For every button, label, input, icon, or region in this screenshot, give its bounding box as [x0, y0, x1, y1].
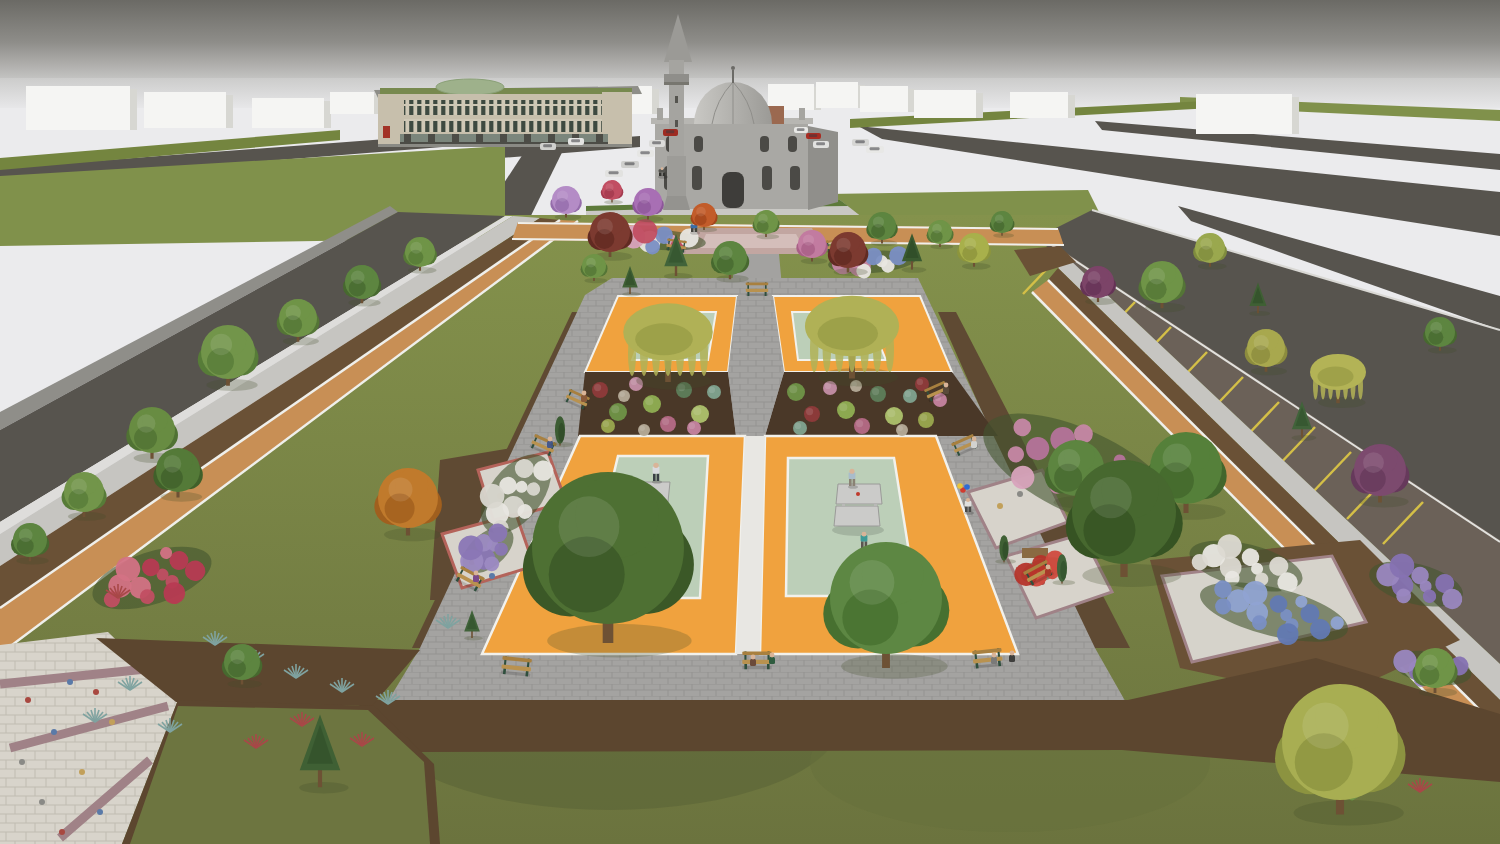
accent-tile [997, 503, 1003, 509]
tree-shadow [384, 528, 441, 541]
person [943, 383, 949, 394]
minaret-base [667, 156, 686, 196]
bench [972, 648, 1003, 669]
column-shade [558, 423, 564, 442]
accent-tile [67, 679, 73, 685]
tree-shadow [834, 268, 868, 276]
canopy-highlight [1422, 654, 1438, 670]
plant-highlight [631, 379, 637, 385]
plant-highlight [905, 391, 911, 397]
tree-shadow [636, 372, 712, 390]
massing-box-side [908, 89, 915, 112]
canopy-highlight [557, 190, 568, 201]
canopy-highlight [1088, 271, 1101, 284]
balloon-blue [964, 484, 970, 490]
car-windows [571, 139, 580, 142]
mosque-window-upper [760, 136, 769, 152]
tree-shadow [555, 214, 582, 220]
tree-shadow [1249, 311, 1270, 316]
canopy-highlight [1430, 322, 1442, 334]
tree-shadow [1085, 298, 1115, 305]
person-head [751, 655, 756, 660]
tree-shadow [871, 240, 898, 246]
canopy-highlight [696, 207, 706, 217]
massing-box [816, 82, 858, 108]
person-legs [657, 473, 660, 481]
tree-shadow [547, 624, 691, 657]
massing-box [26, 86, 130, 130]
tree-shadow [1294, 800, 1404, 826]
tree-shadow [756, 234, 779, 239]
person [547, 437, 553, 448]
mosque-corner-pinnacle-left [657, 108, 663, 120]
massing-box [330, 92, 374, 114]
tree-shadow [408, 267, 437, 274]
plant-highlight [611, 405, 619, 413]
accent-tile [25, 697, 31, 703]
accent-tile [39, 799, 45, 805]
person [1045, 565, 1051, 576]
massing-box [144, 92, 226, 128]
tree-shadow [1428, 347, 1457, 354]
tree-shadow [1318, 397, 1366, 408]
tree-shadow [930, 244, 953, 249]
plant-highlight [872, 388, 879, 395]
canopy-highlight [1090, 477, 1132, 519]
canopy-highlight [389, 478, 413, 502]
canopy-highlight [164, 455, 182, 473]
plant-highlight [640, 426, 645, 431]
table-logo [856, 492, 860, 496]
mosque-window-upper [788, 136, 797, 152]
canopy-highlight [351, 270, 365, 284]
massing-box-side [226, 95, 233, 128]
person-legs [969, 506, 972, 512]
massing-box [252, 98, 324, 128]
mosque-window-lower [692, 166, 702, 190]
person [750, 655, 756, 666]
person-head [944, 383, 949, 388]
tree-shadow [584, 278, 607, 283]
plant-highlight [693, 407, 701, 415]
person [991, 653, 997, 664]
tree-shadow [1359, 496, 1408, 507]
tree-shadow [637, 216, 664, 222]
willow-shade [818, 317, 878, 351]
plant-highlight [920, 414, 927, 421]
car-windows [640, 151, 649, 154]
tree-shadow [16, 557, 48, 564]
building-window-strip-lower [404, 119, 606, 132]
minaret-base-skirt [663, 196, 690, 210]
park-render-canvas [0, 0, 1500, 844]
canopy-highlight [606, 183, 614, 191]
canopy-highlight [836, 238, 850, 252]
building-base-shadow [378, 144, 632, 147]
mosque-window-upper [694, 136, 703, 152]
person-torso [971, 441, 977, 448]
person-torso [991, 657, 997, 664]
tree-shadow [1251, 367, 1287, 375]
massing-box [1196, 94, 1292, 134]
person-torso [581, 395, 587, 402]
canopy-highlight [1058, 449, 1080, 471]
canopy-highlight [586, 258, 596, 268]
accent-tile [489, 573, 495, 579]
tree-shadow [818, 368, 898, 386]
bench-seat [742, 660, 771, 664]
tree-shadow [801, 258, 828, 264]
bench [742, 651, 771, 669]
canopy-highlight [995, 215, 1004, 224]
canopy-highlight [19, 528, 33, 542]
tree-shadow [464, 636, 483, 640]
person-legs [659, 172, 662, 176]
canopy-highlight [964, 238, 976, 250]
canopy-highlight [850, 560, 895, 605]
plant-highlight [789, 385, 797, 393]
car-windows [809, 134, 817, 137]
person-legs [965, 506, 968, 512]
bench-seat [746, 289, 768, 292]
mosque-window-lower [762, 166, 772, 190]
plant-highlight [839, 403, 847, 411]
canopy-highlight [1148, 268, 1165, 285]
accent-tile [19, 759, 25, 765]
tree-shadow [841, 654, 947, 679]
tree-shadow [1292, 435, 1317, 441]
accent-tile [93, 689, 99, 695]
minaret-slit2 [675, 120, 678, 127]
mosque-finial-knob [731, 66, 735, 70]
canopy-highlight [1163, 444, 1192, 473]
tree-shadow [68, 512, 106, 521]
table-half [834, 506, 880, 526]
canopy-highlight [71, 478, 87, 494]
canopy-highlight [758, 214, 768, 224]
person-head [582, 391, 587, 396]
plant-highlight [887, 409, 895, 417]
person-head [474, 571, 479, 576]
tree-shadow [1082, 564, 1181, 587]
car-windows [652, 141, 661, 144]
park-render-stage [0, 0, 1500, 844]
plant-highlight [856, 420, 863, 427]
car-windows [543, 144, 552, 147]
bench [501, 656, 532, 677]
building-entrance-red [383, 126, 390, 138]
car-windows [816, 142, 825, 145]
person-legs [653, 473, 656, 481]
canopy-highlight [873, 216, 884, 227]
person-torso [769, 657, 775, 664]
car-windows [855, 140, 864, 143]
tree-shadow [1419, 688, 1457, 697]
plant-highlight [645, 397, 653, 405]
massing-box [914, 90, 976, 118]
person-head [992, 653, 997, 658]
person-head [1010, 651, 1015, 656]
canopy-highlight [639, 192, 650, 203]
person-head [849, 469, 854, 474]
canopy-highlight [137, 414, 155, 432]
accent-tile [51, 729, 57, 735]
minaret-balcony-shadow [664, 82, 689, 85]
canopy-highlight [559, 496, 620, 557]
plant-highlight [603, 421, 609, 427]
person-head [862, 532, 867, 537]
person-head [661, 167, 664, 170]
tree-shadow [694, 227, 717, 232]
canopy-highlight [803, 234, 814, 245]
bench-back [742, 651, 771, 655]
tree-shadow [716, 275, 748, 282]
canopy-highlight [1363, 452, 1384, 473]
balloon-yellow [957, 483, 963, 489]
canopy-highlight [210, 334, 232, 356]
car-windows [870, 147, 880, 150]
person-head [653, 463, 658, 468]
mosque-door [722, 172, 744, 208]
bench [746, 282, 768, 296]
person [581, 391, 587, 402]
willow-shade [1318, 367, 1354, 387]
person-torso [1009, 655, 1015, 662]
massing-box-side [324, 101, 331, 128]
civic-building [374, 79, 642, 147]
person-legs [663, 172, 666, 176]
plant-highlight [689, 423, 695, 429]
massing-box-side [976, 93, 983, 118]
canopy-highlight [1254, 335, 1269, 350]
column-shade [1002, 541, 1008, 559]
person-head [966, 498, 970, 502]
plant-highlight [662, 418, 669, 425]
person [1009, 651, 1015, 662]
car-windows [666, 130, 674, 133]
tree-shadow [1145, 303, 1185, 312]
minaret-balcony [664, 74, 689, 83]
person-head [548, 437, 553, 442]
tree-shadow [228, 680, 262, 688]
willow-shade [635, 323, 693, 355]
canopy-highlight [932, 224, 942, 234]
person-torso [1045, 569, 1051, 576]
car-windows [609, 171, 619, 174]
tree-shadow [348, 299, 380, 306]
sky [0, 0, 1500, 84]
minaret-slit1 [675, 96, 678, 103]
plant-highlight [806, 408, 813, 415]
building-skylight-dome [436, 79, 504, 95]
tree-shadow [299, 782, 348, 793]
tree-shadow [622, 292, 641, 296]
person-legs [849, 479, 852, 486]
building-roof [380, 88, 632, 95]
tree-shadow [160, 492, 202, 502]
massing-box [860, 86, 908, 112]
plant-highlight [898, 426, 903, 431]
mosque-window-lower [790, 166, 800, 190]
plant-highlight [594, 384, 601, 391]
person-legs [691, 228, 694, 232]
plant-highlight [620, 392, 625, 397]
person [769, 653, 775, 664]
canopy-highlight [597, 218, 613, 234]
accent-tile [97, 809, 103, 815]
tree-shadow [1198, 263, 1227, 270]
massing-box-side [130, 89, 137, 130]
accent-tile [109, 719, 115, 725]
person-head [1046, 565, 1051, 570]
plant-highlight [709, 387, 715, 393]
tree-shadow [604, 200, 623, 204]
tree-shadow [902, 267, 927, 273]
bench-back [746, 282, 768, 285]
canopy-highlight [230, 650, 244, 664]
massing-box [1010, 92, 1068, 118]
tree-shadow [962, 263, 991, 270]
canopy-highlight [410, 242, 422, 254]
tree-shadow [206, 379, 257, 391]
person [971, 437, 977, 448]
column-shade [1060, 561, 1066, 580]
person-head [972, 437, 977, 442]
person-torso [473, 575, 479, 582]
pink-plaza-inner [700, 234, 804, 248]
mosque-corner-pinnacle-right [799, 108, 805, 120]
plant-highlight [795, 423, 801, 429]
massing-box-side [1292, 97, 1299, 134]
canopy-highlight [286, 305, 301, 320]
person-head [770, 653, 775, 658]
plant-highlight [917, 379, 923, 385]
person-legs [853, 479, 856, 486]
car-windows [625, 162, 635, 165]
tree-shadow [664, 273, 693, 280]
canopy-highlight [1200, 238, 1212, 250]
car-windows [797, 128, 805, 131]
accent-tile [1017, 491, 1023, 497]
person-torso [943, 387, 949, 394]
canopy-highlight [1302, 703, 1348, 749]
person [473, 571, 479, 582]
massing-box-side [1068, 95, 1075, 118]
tree-shadow [283, 337, 319, 345]
canopy-highlight [719, 246, 733, 260]
pingpong-table-right [832, 484, 884, 536]
accent-tile [79, 769, 85, 775]
building-window-strip-upper [404, 100, 606, 115]
accent-tile [59, 829, 65, 835]
person-torso [750, 659, 756, 666]
tree-shadow [993, 233, 1014, 238]
